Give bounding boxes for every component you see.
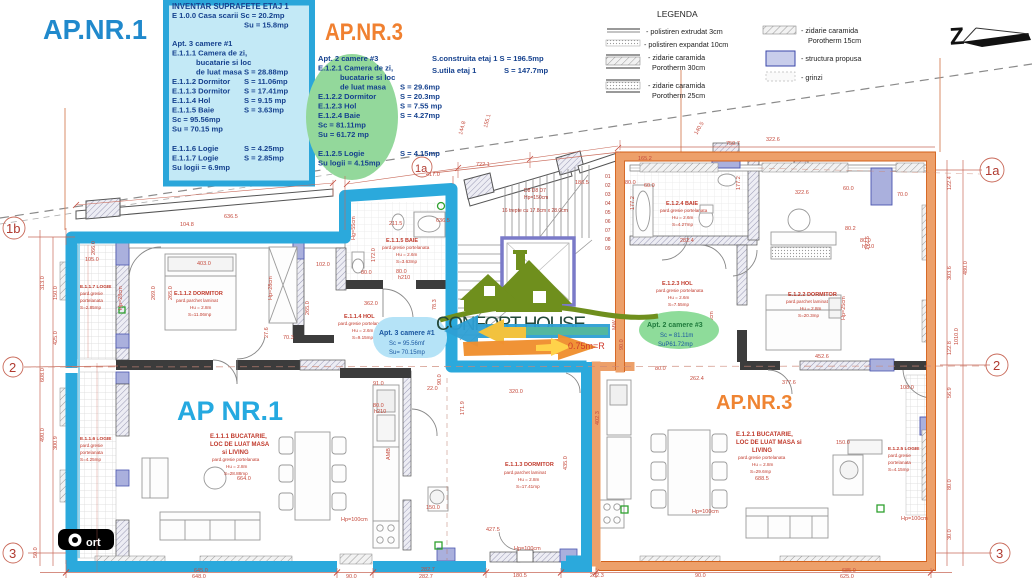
svg-text:177.2: 177.2 xyxy=(630,196,636,210)
svg-text:E.1.1.6 Logie: E.1.1.6 Logie xyxy=(172,144,218,153)
svg-text:S = 4.27mp: S = 4.27mp xyxy=(400,111,440,120)
svg-text:bucatarie si loc: bucatarie si loc xyxy=(196,58,251,67)
svg-text:E.1.1.5 Baie: E.1.1.5 Baie xyxy=(172,106,214,115)
svg-text:pard.gresie portelanata: pard.gresie portelanata xyxy=(738,455,786,460)
svg-text:Porotherm 25cm: Porotherm 25cm xyxy=(652,91,705,100)
svg-text:S = 3.63mp: S = 3.63mp xyxy=(244,106,284,115)
svg-text:171.9: 171.9 xyxy=(460,401,466,415)
svg-text:08: 08 xyxy=(605,237,611,243)
svg-text:452.6: 452.6 xyxy=(815,354,829,360)
svg-text:490.0: 490.0 xyxy=(40,428,46,442)
svg-text:402.3: 402.3 xyxy=(595,411,601,425)
svg-text:435.0: 435.0 xyxy=(563,456,569,470)
svg-text:3: 3 xyxy=(9,546,16,561)
svg-text:Su = 70.15 mp: Su = 70.15 mp xyxy=(172,125,223,134)
svg-text:362.0: 362.0 xyxy=(364,301,378,307)
svg-text:S.construita etaj 1 S = 196.5m: S.construita etaj 1 S = 196.5mp xyxy=(432,54,544,63)
svg-text:Hp=100cm: Hp=100cm xyxy=(341,517,368,523)
svg-text:SuP61.72mp: SuP61.72mp xyxy=(658,342,693,348)
svg-text:- structura propusa: - structura propusa xyxy=(801,54,861,63)
svg-text:172.6: 172.6 xyxy=(865,236,871,250)
svg-text:Sc = 95.56mp: Sc = 95.56mp xyxy=(172,115,221,124)
svg-text:04: 04 xyxy=(605,201,611,207)
svg-text:LOC DE LUAT MASA si: LOC DE LUAT MASA si xyxy=(736,440,802,446)
svg-text:06: 06 xyxy=(605,219,611,225)
svg-text:180.5: 180.5 xyxy=(513,573,527,579)
svg-text:320.0: 320.0 xyxy=(509,389,523,395)
svg-text:S=4.15mp: S=4.15mp xyxy=(888,467,910,472)
svg-text:150.0: 150.0 xyxy=(53,286,59,300)
svg-text:pard.gresie portelanata: pard.gresie portelanata xyxy=(656,288,704,293)
svg-text:S=7.55mp: S=7.55mp xyxy=(668,302,690,307)
svg-text:Apt. 3 camere #1: Apt. 3 camere #1 xyxy=(172,39,233,48)
svg-text:70.0: 70.0 xyxy=(897,192,908,198)
svg-text:Apt. 3 camere #1: Apt. 3 camere #1 xyxy=(379,330,435,337)
svg-text:300.9: 300.9 xyxy=(53,436,59,450)
svg-text:portelanata: portelanata xyxy=(80,298,103,303)
svg-text:de luat masa: de luat masa xyxy=(196,68,243,77)
svg-text:Su logii = 4.15mp: Su logii = 4.15mp xyxy=(318,159,381,168)
svg-text:Apt. 2 camere #3: Apt. 2 camere #3 xyxy=(647,322,703,329)
svg-text:S = 2.85mp: S = 2.85mp xyxy=(244,154,284,163)
svg-text:Hp=25cm: Hp=25cm xyxy=(841,296,847,320)
svg-text:90.0: 90.0 xyxy=(346,574,357,579)
svg-text:Hu = 2.6m: Hu = 2.6m xyxy=(672,215,693,220)
svg-text:Porotherm 15cm: Porotherm 15cm xyxy=(808,36,861,45)
svg-text:E.1.1.3 DORMITOR: E.1.1.3 DORMITOR xyxy=(505,462,554,468)
svg-text:AP.NR.3: AP.NR.3 xyxy=(716,392,792,414)
svg-text:Su = 61.72 mp: Su = 61.72 mp xyxy=(318,130,369,139)
svg-text:Hu = 2.8m: Hu = 2.8m xyxy=(752,462,773,467)
svg-text:265.0: 265.0 xyxy=(305,301,311,315)
svg-text:S = 9.15 mp: S = 9.15 mp xyxy=(244,96,286,105)
svg-text:Hu = 2.8m: Hu = 2.8m xyxy=(800,306,821,311)
svg-text:Hg=55cm: Hg=55cm xyxy=(351,216,357,240)
svg-text:S=2.85mp: S=2.85mp xyxy=(80,305,102,310)
svg-text:S=28.88mp: S=28.88mp xyxy=(224,471,248,476)
svg-text:S.utila etaj 1: S.utila etaj 1 xyxy=(432,66,477,75)
svg-text:Sc = 81.11mp: Sc = 81.11mp xyxy=(318,121,366,130)
svg-text:S = 17.41mp: S = 17.41mp xyxy=(244,87,288,96)
svg-text:Hu = 2.8m: Hu = 2.8m xyxy=(226,464,247,469)
svg-text:pard.gresie: pard.gresie xyxy=(80,291,103,296)
svg-text:E.1.1.7 LOGIE: E.1.1.7 LOGIE xyxy=(80,284,112,290)
svg-text:E.1.1.2 DORMITOR: E.1.1.2 DORMITOR xyxy=(174,291,223,297)
svg-text:2: 2 xyxy=(993,358,1000,373)
svg-text:645.0: 645.0 xyxy=(194,568,208,574)
svg-text:122.8: 122.8 xyxy=(947,341,953,355)
svg-text:22.0: 22.0 xyxy=(427,386,438,392)
svg-text:AP.NR.3: AP.NR.3 xyxy=(325,19,403,46)
svg-text:Apt. 2 camere #3: Apt. 2 camere #3 xyxy=(318,54,378,63)
svg-text:S=17.41mp: S=17.41mp xyxy=(516,484,540,489)
svg-text:0.75m=R: 0.75m=R xyxy=(568,341,605,351)
svg-text:377.6: 377.6 xyxy=(782,380,796,386)
svg-text:30.0: 30.0 xyxy=(947,529,953,540)
svg-text:262.4: 262.4 xyxy=(690,376,704,382)
svg-text:S = 28.88mp: S = 28.88mp xyxy=(244,68,288,77)
svg-text:07: 07 xyxy=(605,228,611,234)
svg-text:Hu = 2.6m: Hu = 2.6m xyxy=(668,295,689,300)
svg-text:108.0: 108.0 xyxy=(900,385,914,391)
svg-text:S=29.6mp: S=29.6mp xyxy=(750,469,772,474)
svg-text:E.1.2.4 BAIE: E.1.2.4 BAIE xyxy=(666,201,698,207)
svg-text:90.0: 90.0 xyxy=(437,374,443,385)
svg-text:E.1.2.2 DORMITOR: E.1.2.2 DORMITOR xyxy=(788,292,837,298)
svg-text:2: 2 xyxy=(9,360,16,375)
svg-text:S=20.3mp: S=20.3mp xyxy=(798,313,820,318)
svg-text:S = 4.25mp: S = 4.25mp xyxy=(244,144,284,153)
svg-text:AMB: AMB xyxy=(386,448,392,460)
svg-text:02: 02 xyxy=(605,183,611,189)
svg-text:E.1.1.2 Dormitor: E.1.1.2 Dormitor xyxy=(172,77,230,86)
svg-text:- polistiren extrudat 3cm: - polistiren extrudat 3cm xyxy=(646,27,723,36)
svg-text:Porotherm 30cm: Porotherm 30cm xyxy=(652,63,705,72)
svg-text:LEGENDA: LEGENDA xyxy=(657,9,698,19)
svg-text:313.0: 313.0 xyxy=(40,276,46,290)
svg-text:05: 05 xyxy=(605,210,611,216)
svg-text:INVENTAR SUPRAFETE ETAJ 1: INVENTAR SUPRAFETE ETAJ 1 xyxy=(172,2,289,11)
svg-text:Hp=100cm: Hp=100cm xyxy=(901,516,928,522)
svg-text:Hp=100cm: Hp=100cm xyxy=(514,546,541,552)
svg-text:202.3: 202.3 xyxy=(590,573,604,579)
svg-text:60.0: 60.0 xyxy=(843,186,854,192)
svg-text:S = 147.7mp: S = 147.7mp xyxy=(504,66,548,75)
svg-text:Sc = 81.11m: Sc = 81.11m xyxy=(660,333,693,339)
svg-text:E.1.2.3 HOL: E.1.2.3 HOL xyxy=(662,281,693,287)
svg-text:303.6: 303.6 xyxy=(947,266,953,280)
svg-text:S = 20.3mp: S = 20.3mp xyxy=(400,92,440,101)
svg-text:266.0: 266.0 xyxy=(91,241,97,255)
svg-text:70.3: 70.3 xyxy=(283,335,294,341)
svg-text:1a: 1a xyxy=(985,163,1000,178)
svg-text:S=9.15mp: S=9.15mp xyxy=(352,335,374,340)
svg-text:D8 D8 D7: D8 D8 D7 xyxy=(524,188,546,194)
svg-text:80.0: 80.0 xyxy=(625,180,636,186)
svg-text:S = 11.06mp: S = 11.06mp xyxy=(244,77,288,86)
svg-text:78.3: 78.3 xyxy=(432,299,438,310)
svg-text:S = 7.55 mp: S = 7.55 mp xyxy=(400,102,442,111)
svg-text:480.0: 480.0 xyxy=(963,261,969,275)
svg-text:150.0: 150.0 xyxy=(426,505,440,511)
svg-text:E.1.1.5 BAIE: E.1.1.5 BAIE xyxy=(386,238,418,244)
svg-text:211.5: 211.5 xyxy=(389,221,402,227)
svg-text:MW: MW xyxy=(612,319,618,330)
svg-text:282.7: 282.7 xyxy=(419,574,433,579)
svg-text:664.0: 664.0 xyxy=(237,476,251,482)
svg-text:pard.gresie portelanata: pard.gresie portelanata xyxy=(382,245,430,250)
svg-text:E.1.1.1 BUCATARIE,: E.1.1.1 BUCATARIE, xyxy=(210,434,267,440)
svg-text:80.0: 80.0 xyxy=(655,366,666,372)
svg-text:pard.gresie portelanata: pard.gresie portelanata xyxy=(660,208,708,213)
svg-text:Hu = 2.8m: Hu = 2.8m xyxy=(190,305,211,310)
svg-text:h210: h210 xyxy=(398,275,410,281)
svg-text:h210: h210 xyxy=(374,409,386,415)
svg-text:636.5: 636.5 xyxy=(224,214,238,220)
svg-text:91.0: 91.0 xyxy=(373,381,384,387)
svg-text:105.0: 105.0 xyxy=(85,257,99,263)
svg-text:282.7: 282.7 xyxy=(421,567,435,573)
svg-text:282.4: 282.4 xyxy=(680,238,694,244)
svg-text:608.0: 608.0 xyxy=(40,368,46,382)
svg-text:- polistiren expandat 10cm: - polistiren expandat 10cm xyxy=(644,40,728,49)
svg-text:portelanata: portelanata xyxy=(888,460,911,465)
svg-text:E 1.0.0 Casa scarii Sc = 20.2m: E 1.0.0 Casa scarii Sc = 20.2mp xyxy=(172,11,285,20)
svg-text:750.7: 750.7 xyxy=(726,141,740,147)
svg-text:S = 29.6mp: S = 29.6mp xyxy=(400,83,440,92)
svg-text:Hu = 2.6m: Hu = 2.6m xyxy=(396,252,417,257)
svg-text:688.5: 688.5 xyxy=(755,476,769,482)
svg-text:03: 03 xyxy=(605,192,611,198)
svg-text:636.5: 636.5 xyxy=(436,218,450,224)
svg-text:E.1.1.4 Hol: E.1.1.4 Hol xyxy=(172,96,210,105)
svg-text:- zidarie caramida: - zidarie caramida xyxy=(648,81,705,90)
svg-text:pard.parchet laminat: pard.parchet laminat xyxy=(176,298,219,303)
svg-text:pard.gresie portelanata: pard.gresie portelanata xyxy=(212,457,260,462)
svg-text:S = 4.15mp: S = 4.15mp xyxy=(400,149,440,158)
svg-text:685.0: 685.0 xyxy=(842,568,856,574)
svg-text:Hu = 2.6m: Hu = 2.6m xyxy=(352,328,373,333)
svg-text:si LIVING: si LIVING xyxy=(222,450,249,456)
svg-text:90.0: 90.0 xyxy=(695,573,706,579)
svg-text:S=3.63mp: S=3.63mp xyxy=(396,259,418,264)
svg-text:425.0: 425.0 xyxy=(53,331,59,345)
svg-text:1010.0: 1010.0 xyxy=(954,328,960,345)
svg-text:102.0: 102.0 xyxy=(316,262,330,268)
svg-text:80.2: 80.2 xyxy=(845,226,856,232)
svg-text:E.1.2.2 Dormitor: E.1.2.2 Dormitor xyxy=(318,92,376,101)
svg-text:Z: Z xyxy=(949,23,966,51)
svg-text:Su logii = 6.9mp: Su logii = 6.9mp xyxy=(172,163,230,172)
svg-text:177.2: 177.2 xyxy=(736,176,742,190)
svg-text:E.1.1.6 LOGIE: E.1.1.6 LOGIE xyxy=(80,436,112,442)
svg-text:de luat masa: de luat masa xyxy=(340,83,387,92)
svg-text:80.0: 80.0 xyxy=(947,479,953,490)
svg-text:- grinzi: - grinzi xyxy=(801,73,823,82)
svg-text:S=11.06mp: S=11.06mp xyxy=(188,312,212,317)
svg-text:S=4.27mp: S=4.27mp xyxy=(672,222,694,227)
svg-text:E.1.1.3 Dormitor: E.1.1.3 Dormitor xyxy=(172,87,230,96)
svg-text:E.1.2.1 BUCATARIE,: E.1.2.1 BUCATARIE, xyxy=(736,432,793,438)
svg-text:AP.NR.1: AP.NR.1 xyxy=(43,14,147,45)
svg-text:322.6: 322.6 xyxy=(766,137,780,143)
svg-text:AP NR.1: AP NR.1 xyxy=(177,396,283,426)
svg-text:01: 01 xyxy=(605,174,611,180)
svg-text:80.0: 80.0 xyxy=(361,270,372,276)
svg-text:S=4.25mp: S=4.25mp xyxy=(80,457,102,462)
svg-text:- zidarie caramida: - zidarie caramida xyxy=(801,26,858,35)
svg-text:3: 3 xyxy=(996,546,1003,561)
svg-text:427.5: 427.5 xyxy=(486,527,500,533)
svg-text:Su= 70.15mp: Su= 70.15mp xyxy=(389,350,426,356)
svg-text:E.1.2.5 Logie: E.1.2.5 Logie xyxy=(318,149,364,158)
svg-text:Hp=150cm: Hp=150cm xyxy=(524,195,548,201)
svg-text:16 trepte cu 17.8cm x 28.0cm: 16 trepte cu 17.8cm x 28.0cm xyxy=(502,208,568,214)
svg-text:403.0: 403.0 xyxy=(197,261,211,267)
svg-text:E.1.2.4 Baie: E.1.2.4 Baie xyxy=(318,111,360,120)
svg-text:165.2: 165.2 xyxy=(638,156,652,162)
svg-text:269.0: 269.0 xyxy=(151,286,157,300)
svg-text:Hp=100cm: Hp=100cm xyxy=(692,509,719,515)
svg-text:186.5: 186.5 xyxy=(575,180,589,186)
svg-text:portelanata: portelanata xyxy=(80,450,103,455)
svg-text:Hp=28cm: Hp=28cm xyxy=(268,276,274,300)
svg-text:150.0: 150.0 xyxy=(836,440,850,446)
svg-text:pard.gresie: pard.gresie xyxy=(888,453,911,458)
svg-text:pard.parchet laminat: pard.parchet laminat xyxy=(786,299,829,304)
svg-text:90.0: 90.0 xyxy=(619,339,625,350)
svg-text:E.1.2.1 Camera de zi,: E.1.2.1 Camera de zi, xyxy=(318,64,393,73)
svg-text:60.0: 60.0 xyxy=(644,183,655,189)
svg-text:27.6: 27.6 xyxy=(264,327,270,338)
svg-text:E.1.2.5 LOGIE: E.1.2.5 LOGIE xyxy=(888,446,920,452)
svg-text:LOC DE LUAT MASA: LOC DE LUAT MASA xyxy=(210,442,270,448)
svg-text:pard.parchet laminat: pard.parchet laminat xyxy=(504,470,547,475)
svg-text:ort: ort xyxy=(86,537,101,549)
svg-text:122.4: 122.4 xyxy=(947,176,953,190)
svg-text:E.1.1.7 Logie: E.1.1.7 Logie xyxy=(172,154,218,163)
svg-text:LIVING: LIVING xyxy=(752,448,772,454)
svg-text:09: 09 xyxy=(605,246,611,252)
svg-text:56.9: 56.9 xyxy=(947,387,953,398)
svg-text:625.0: 625.0 xyxy=(840,574,854,579)
svg-text:E.1.1.1 Camera de zi,: E.1.1.1 Camera de zi, xyxy=(172,49,247,58)
svg-text:- zidarie caramida: - zidarie caramida xyxy=(648,53,705,62)
svg-text:172.0: 172.0 xyxy=(371,248,377,262)
svg-text:E.1.1.4 HOL: E.1.1.4 HOL xyxy=(344,314,375,320)
svg-text:Hp=28cm: Hp=28cm xyxy=(118,286,124,310)
svg-text:50.0: 50.0 xyxy=(33,547,39,558)
svg-text:E.1.2.3 Hol: E.1.2.3 Hol xyxy=(318,102,356,111)
svg-text:Sc = 95.56mf: Sc = 95.56mf xyxy=(389,341,425,347)
svg-text:Hu = 2.8m: Hu = 2.8m xyxy=(518,477,539,482)
svg-text:1b: 1b xyxy=(6,221,20,236)
svg-text:Su = 15.8mp: Su = 15.8mp xyxy=(244,21,289,30)
svg-text:pard.gresie: pard.gresie xyxy=(80,443,103,448)
svg-text:648.0: 648.0 xyxy=(192,574,206,579)
svg-text:104.8: 104.8 xyxy=(180,222,194,228)
svg-text:322.6: 322.6 xyxy=(795,190,809,196)
svg-text:bucatarie si loc: bucatarie si loc xyxy=(340,73,395,82)
